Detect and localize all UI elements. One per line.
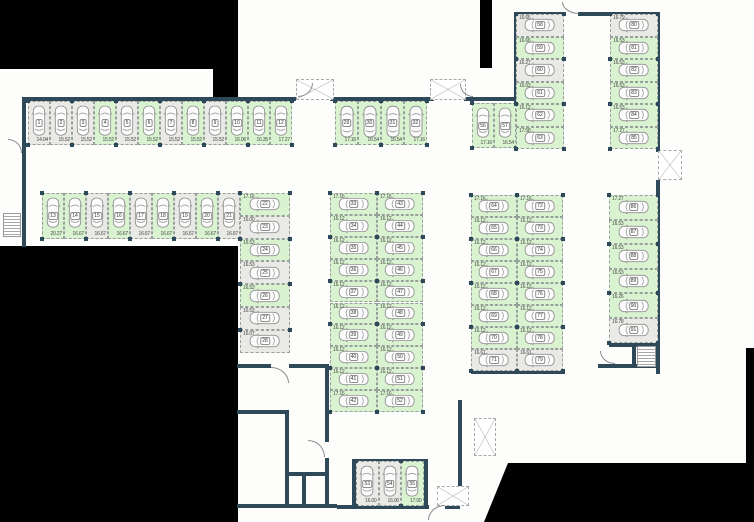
shaft-icon <box>658 150 682 180</box>
parking-space-2[interactable]: 215.52 <box>50 101 72 145</box>
parking-space-80[interactable]: 8016.79 <box>610 14 658 37</box>
parking-space-76[interactable]: 7616.12 <box>517 283 563 305</box>
parking-space-91[interactable]: 9116.78 <box>609 318 658 343</box>
space-number: 56 <box>478 122 488 130</box>
junction-marker <box>375 235 379 239</box>
parking-space-82[interactable]: 8216.53 <box>610 59 658 82</box>
space-number: 78 <box>535 334 545 342</box>
junction-marker <box>656 12 660 16</box>
junction-marker <box>379 143 383 147</box>
parking-space-66[interactable]: 6616.12 <box>471 239 517 261</box>
space-number: 51 <box>395 375 405 383</box>
junction-marker <box>470 146 474 150</box>
space-number: 47 <box>395 288 405 296</box>
space-number: 9 <box>212 119 219 127</box>
space-size-label: 16.53 <box>243 286 255 291</box>
space-size-label: 16.12 <box>474 285 486 290</box>
junction-marker <box>128 191 132 195</box>
junction-marker <box>158 143 162 147</box>
space-size-label: 16.12 <box>519 106 531 111</box>
parking-space-88[interactable]: 8816.53 <box>609 244 658 269</box>
space-size-label: 15.52 <box>190 138 202 143</box>
parking-space-43[interactable]: 4317.16 <box>377 193 423 215</box>
parking-space-46[interactable]: 4616.12 <box>377 259 423 281</box>
space-number: 82 <box>629 66 639 74</box>
space-number: 24 <box>260 246 270 254</box>
space-number: 21 <box>224 212 234 220</box>
space-number: 18 <box>158 212 168 220</box>
parking-space-37[interactable]: 3716.12 <box>330 281 377 303</box>
space-number: 85 <box>629 134 639 142</box>
parking-space-57[interactable]: 5716.54 <box>494 103 516 148</box>
space-number: 12 <box>276 119 286 127</box>
space-number: 81 <box>629 44 639 52</box>
space-number: 7 <box>168 119 175 127</box>
junction-marker <box>246 143 250 147</box>
space-size-label: 16.12 <box>520 285 532 290</box>
parking-space-68[interactable]: 6816.12 <box>471 283 517 305</box>
space-number: 87 <box>629 228 639 236</box>
parking-space-38[interactable]: 3816.12 <box>330 303 377 325</box>
space-number: 72 <box>535 202 545 210</box>
parking-space-45[interactable]: 4516.12 <box>377 237 423 259</box>
parking-space-19[interactable]: 1916.67 <box>174 193 196 239</box>
parking-space-40[interactable]: 4016.12 <box>330 346 377 368</box>
parking-space-21[interactable]: 2116.67 <box>218 193 240 239</box>
parking-space-48[interactable]: 4816.12 <box>377 303 423 325</box>
parking-space-49[interactable]: 4916.12 <box>377 324 423 346</box>
parking-space-63[interactable]: 6317.58 <box>516 127 564 150</box>
junction-marker <box>515 237 519 241</box>
parking-space-90[interactable]: 9016.26 <box>609 293 658 318</box>
parking-space-56[interactable]: 5617.16 <box>472 103 494 148</box>
space-number: 22 <box>260 200 270 208</box>
junction-marker <box>40 191 44 195</box>
parking-space-5[interactable]: 515.52 <box>116 101 138 145</box>
junction-marker <box>607 341 611 345</box>
space-size-label: 16.53 <box>243 309 255 314</box>
parking-space-59[interactable]: 5916.66 <box>516 37 564 60</box>
parking-space-30[interactable]: 3016.54 <box>358 101 381 145</box>
space-size-label: 16.12 <box>474 219 486 224</box>
parking-space-47[interactable]: 4716.12 <box>377 281 423 303</box>
junction-marker <box>607 291 611 295</box>
parking-space-64[interactable]: 6417.16 <box>471 195 517 217</box>
junction-marker <box>608 102 612 106</box>
space-size-label: 16.53 <box>612 271 624 276</box>
space-number: 50 <box>395 353 405 361</box>
space-size-label: 16.61 <box>474 351 486 356</box>
space-number: 76 <box>535 290 545 298</box>
space-size-label: 16.67 <box>182 232 194 237</box>
space-number: 86 <box>629 203 639 211</box>
space-size-label: 15.52 <box>124 138 136 143</box>
space-number: 32 <box>411 119 421 127</box>
space-size-label: 17.16 <box>380 392 392 397</box>
space-number: 41 <box>349 375 359 383</box>
space-number: 5 <box>124 119 131 127</box>
junction-marker <box>40 237 44 241</box>
junction-marker <box>421 322 425 326</box>
junction-marker <box>216 237 220 241</box>
parking-space-71[interactable]: 7116.61 <box>471 349 517 371</box>
space-size-label: 16.54 <box>367 138 379 143</box>
parking-space-34[interactable]: 3416.12 <box>330 215 377 237</box>
junction-marker <box>425 143 429 147</box>
space-size-label: 16.78 <box>612 320 624 325</box>
space-size-label: 16.67 <box>138 232 150 237</box>
junction-marker <box>333 99 337 103</box>
junction-marker <box>561 237 565 241</box>
parking-space-85[interactable]: 8517.27 <box>610 127 658 150</box>
junction-marker <box>514 102 518 106</box>
parking-space-44[interactable]: 4416.12 <box>377 215 423 237</box>
space-number: 91 <box>629 326 639 334</box>
junction-marker <box>354 459 358 463</box>
space-size-label: 17.27 <box>612 197 624 202</box>
junction-marker <box>656 341 660 345</box>
wall <box>325 458 329 508</box>
space-number: 45 <box>395 244 405 252</box>
outside-area <box>480 0 492 68</box>
parking-space-72[interactable]: 7217.16 <box>517 195 563 217</box>
junction-marker <box>607 242 611 246</box>
space-number: 55 <box>407 480 417 488</box>
parking-space-24[interactable]: 2416.53 <box>240 239 290 262</box>
parking-space-89[interactable]: 8916.53 <box>609 269 658 294</box>
junction-marker <box>515 193 519 197</box>
wall <box>302 472 306 506</box>
space-size-label: 16.12 <box>474 307 486 312</box>
space-number: 1 <box>36 119 43 127</box>
parking-space-29[interactable]: 2917.16 <box>335 101 358 145</box>
space-number: 57 <box>500 122 510 130</box>
space-size-label: 16.66 <box>519 39 531 44</box>
junction-marker <box>561 193 565 197</box>
parking-space-84[interactable]: 8416.53 <box>610 104 658 127</box>
junction-marker <box>514 57 518 61</box>
space-number: 40 <box>349 353 359 361</box>
parking-space-16[interactable]: 1616.67 <box>108 193 130 239</box>
junction-marker <box>421 366 425 370</box>
space-number: 63 <box>535 134 545 142</box>
parking-space-81[interactable]: 8116.53 <box>610 37 658 60</box>
space-size-label: 20.27 <box>50 232 62 237</box>
junction-marker <box>172 237 176 241</box>
junction-marker <box>562 57 566 61</box>
space-size-label: 16.12 <box>474 329 486 334</box>
space-size-label: 16.67 <box>116 232 128 237</box>
parking-space-13[interactable]: 1320.27 <box>42 193 64 239</box>
outside-area <box>746 348 754 466</box>
space-size-label: 16.53 <box>243 263 255 268</box>
junction-marker <box>70 99 74 103</box>
space-size-label: 16.53 <box>613 84 625 89</box>
space-number: 30 <box>365 119 375 127</box>
space-number: 79 <box>535 356 545 364</box>
stairs-icon <box>637 346 656 367</box>
junction-marker <box>515 281 519 285</box>
space-number: 13 <box>48 212 58 220</box>
wall <box>285 410 289 506</box>
junction-marker <box>561 325 565 329</box>
junction-marker <box>561 281 565 285</box>
parking-space-33[interactable]: 3317.16 <box>330 193 377 215</box>
space-number: 77 <box>535 312 545 320</box>
parking-space-14[interactable]: 1416.67 <box>64 193 86 239</box>
parking-space-67[interactable]: 6716.12 <box>471 261 517 283</box>
parking-space-32[interactable]: 3217.16 <box>404 101 427 145</box>
space-number: 68 <box>489 290 499 298</box>
space-size-label: 16.54 <box>502 141 514 146</box>
wall <box>237 410 287 414</box>
parking-space-4[interactable]: 415.52 <box>94 101 116 145</box>
space-number: 71 <box>489 356 499 364</box>
space-size-label: 16.61 <box>520 351 532 356</box>
space-size-label: 17.16 <box>380 195 392 200</box>
space-size-label: 17.00 <box>410 499 422 504</box>
door-arc <box>308 440 325 457</box>
space-size-label: 16.12 <box>380 326 392 331</box>
space-number: 89 <box>629 277 639 285</box>
parking-space-65[interactable]: 6516.12 <box>471 217 517 239</box>
parking-space-87[interactable]: 8716.53 <box>609 220 658 245</box>
parking-space-79[interactable]: 7916.61 <box>517 349 563 371</box>
parking-space-18[interactable]: 1816.67 <box>152 193 174 239</box>
parking-space-23[interactable]: 2316.00 <box>240 216 290 239</box>
space-number: 60 <box>535 66 545 74</box>
parking-space-75[interactable]: 7516.12 <box>517 261 563 283</box>
space-number: 42 <box>349 397 359 405</box>
parking-space-28[interactable]: 2816.07 <box>240 330 290 353</box>
junction-marker <box>216 191 220 195</box>
space-number: 73 <box>535 224 545 232</box>
junction-marker <box>425 99 429 103</box>
space-size-label: 16.12 <box>333 217 345 222</box>
junction-marker <box>128 237 132 241</box>
space-number: 20 <box>202 212 212 220</box>
junction-marker <box>470 101 474 105</box>
space-size-label: 17.16 <box>520 197 532 202</box>
parking-space-17[interactable]: 1716.67 <box>130 193 152 239</box>
junction-marker <box>421 410 425 414</box>
junction-marker <box>656 102 660 106</box>
parking-space-61[interactable]: 6116.53 <box>516 82 564 105</box>
parking-space-31[interactable]: 3116.54 <box>381 101 404 145</box>
parking-space-69[interactable]: 6916.12 <box>471 305 517 327</box>
space-number: 61 <box>535 89 545 97</box>
parking-space-25[interactable]: 2516.53 <box>240 261 290 284</box>
space-size-label: 16.12 <box>380 305 392 310</box>
junction-marker <box>328 279 332 283</box>
parking-space-74[interactable]: 7416.12 <box>517 239 563 261</box>
junction-marker <box>375 366 379 370</box>
space-size-label: 16.12 <box>474 241 486 246</box>
space-number: 3 <box>80 119 87 127</box>
parking-space-78[interactable]: 7816.12 <box>517 327 563 349</box>
space-size-label: 15.52 <box>80 138 92 143</box>
parking-space-86[interactable]: 8617.27 <box>609 195 658 220</box>
space-number: 48 <box>395 309 405 317</box>
junction-marker <box>375 279 379 283</box>
parking-space-54[interactable]: 5416.00 <box>379 461 402 506</box>
parking-space-26[interactable]: 2616.53 <box>240 284 290 307</box>
parking-space-8[interactable]: 815.52 <box>182 101 204 145</box>
space-number: 17 <box>136 212 146 220</box>
space-size-label: 17.16 <box>333 392 345 397</box>
parking-space-35[interactable]: 3516.12 <box>330 237 377 259</box>
space-number: 4 <box>102 119 109 127</box>
space-size-label: 16.53 <box>243 241 255 246</box>
parking-space-53[interactable]: 5316.00 <box>356 461 379 506</box>
space-number: 33 <box>349 200 359 208</box>
parking-space-27[interactable]: 2716.53 <box>240 307 290 330</box>
parking-space-6[interactable]: 615.52 <box>138 101 160 145</box>
space-number: 90 <box>629 302 639 310</box>
junction-marker <box>288 282 292 286</box>
space-number: 11 <box>254 119 263 127</box>
parking-space-9[interactable]: 915.52 <box>204 101 226 145</box>
wall <box>285 472 329 476</box>
parking-space-73[interactable]: 7316.12 <box>517 217 563 239</box>
parking-space-42[interactable]: 4217.16 <box>330 390 377 412</box>
space-size-label: 16.67 <box>226 232 238 237</box>
space-size-label: 17.16 <box>480 141 492 146</box>
junction-marker <box>114 143 118 147</box>
parking-space-55[interactable]: 5517.00 <box>401 461 424 506</box>
parking-space-20[interactable]: 2016.67 <box>196 193 218 239</box>
junction-marker <box>399 504 403 508</box>
space-size-label: 16.12 <box>520 329 532 334</box>
outside-area <box>508 463 754 522</box>
space-size-label: 16.12 <box>520 307 532 312</box>
space-number: 38 <box>349 309 359 317</box>
space-number: 43 <box>395 200 405 208</box>
parking-space-39[interactable]: 3916.12 <box>330 324 377 346</box>
junction-marker <box>375 322 379 326</box>
junction-marker <box>421 235 425 239</box>
outside-area <box>484 463 508 522</box>
space-number: 54 <box>385 480 395 488</box>
space-number: 31 <box>388 119 398 127</box>
parking-space-58[interactable]: 5816.66 <box>516 14 564 37</box>
space-size-label: 17.58 <box>519 129 531 134</box>
junction-marker <box>238 328 242 332</box>
parking-space-70[interactable]: 7016.12 <box>471 327 517 349</box>
parking-space-10[interactable]: 1016.06 <box>226 101 248 145</box>
junction-marker <box>328 366 332 370</box>
junction-marker <box>158 99 162 103</box>
junction-marker <box>656 291 660 295</box>
parking-space-60[interactable]: 6016.27 <box>516 59 564 82</box>
space-size-label: 17.16 <box>243 195 255 200</box>
door-arc <box>428 505 445 520</box>
space-number: 70 <box>489 334 499 342</box>
wall <box>237 504 337 508</box>
door-arc <box>600 351 615 364</box>
space-size-label: 16.00 <box>365 499 377 504</box>
parking-space-3[interactable]: 315.52 <box>72 101 94 145</box>
junction-marker <box>656 242 660 246</box>
space-size-label: 16.35 <box>256 138 268 143</box>
parking-space-22[interactable]: 2217.16 <box>240 193 290 216</box>
space-size-label: 17.16 <box>474 197 486 202</box>
parking-space-12[interactable]: 1217.27 <box>270 101 292 145</box>
space-size-label: 16.12 <box>333 283 345 288</box>
space-number: 35 <box>349 244 359 252</box>
parking-space-36[interactable]: 3616.12 <box>330 259 377 281</box>
junction-marker <box>290 99 294 103</box>
parking-space-41[interactable]: 4116.12 <box>330 368 377 390</box>
junction-marker <box>515 369 519 373</box>
space-size-label: 16.67 <box>160 232 172 237</box>
junction-marker <box>172 191 176 195</box>
space-number: 44 <box>395 222 405 230</box>
junction-marker <box>469 369 473 373</box>
junction-marker <box>328 235 332 239</box>
junction-marker <box>561 369 565 373</box>
space-number: 88 <box>629 252 639 260</box>
junction-marker <box>421 191 425 195</box>
junction-marker <box>238 237 242 241</box>
parking-space-52[interactable]: 5217.16 <box>377 390 423 412</box>
space-size-label: 16.00 <box>243 218 255 223</box>
space-number: 37 <box>349 288 359 296</box>
stairs-icon <box>3 213 21 237</box>
parking-space-15[interactable]: 1516.67 <box>86 193 108 239</box>
door-arc <box>8 139 22 153</box>
space-size-label: 15.52 <box>146 138 158 143</box>
parking-space-77[interactable]: 7716.12 <box>517 305 563 327</box>
wall <box>237 364 271 368</box>
space-size-label: 17.16 <box>333 195 345 200</box>
space-number: 25 <box>260 269 270 277</box>
parking-space-7[interactable]: 715.52 <box>160 101 182 145</box>
junction-marker <box>469 325 473 329</box>
space-size-label: 16.12 <box>380 261 392 266</box>
space-size-label: 16.53 <box>613 61 625 66</box>
shaft-icon <box>437 486 469 506</box>
parking-space-83[interactable]: 8316.53 <box>610 82 658 105</box>
space-size-label: 16.67 <box>204 232 216 237</box>
space-number: 26 <box>260 292 270 300</box>
junction-marker <box>290 143 294 147</box>
space-size-label: 16.79 <box>613 16 625 21</box>
outside-area <box>0 0 218 69</box>
junction-marker <box>84 237 88 241</box>
parking-space-62[interactable]: 6216.12 <box>516 104 564 127</box>
space-number: 39 <box>349 331 359 339</box>
junction-marker <box>328 191 332 195</box>
space-size-label: 16.53 <box>612 246 624 251</box>
junction-marker <box>375 410 379 414</box>
space-number: 28 <box>260 337 270 345</box>
parking-space-1[interactable]: 114.04 <box>28 101 50 145</box>
parking-space-51[interactable]: 5116.12 <box>377 368 423 390</box>
space-size-label: 17.27 <box>278 138 290 143</box>
junction-marker <box>562 12 566 16</box>
space-size-label: 16.67 <box>94 232 106 237</box>
parking-space-11[interactable]: 1116.35 <box>248 101 270 145</box>
space-size-label: 16.12 <box>520 241 532 246</box>
space-size-label: 16.12 <box>333 239 345 244</box>
junction-marker <box>515 325 519 329</box>
space-size-label: 16.53 <box>613 106 625 111</box>
junction-marker <box>421 279 425 283</box>
parking-space-50[interactable]: 5016.12 <box>377 346 423 368</box>
junction-marker <box>607 193 611 197</box>
junction-marker <box>26 99 30 103</box>
